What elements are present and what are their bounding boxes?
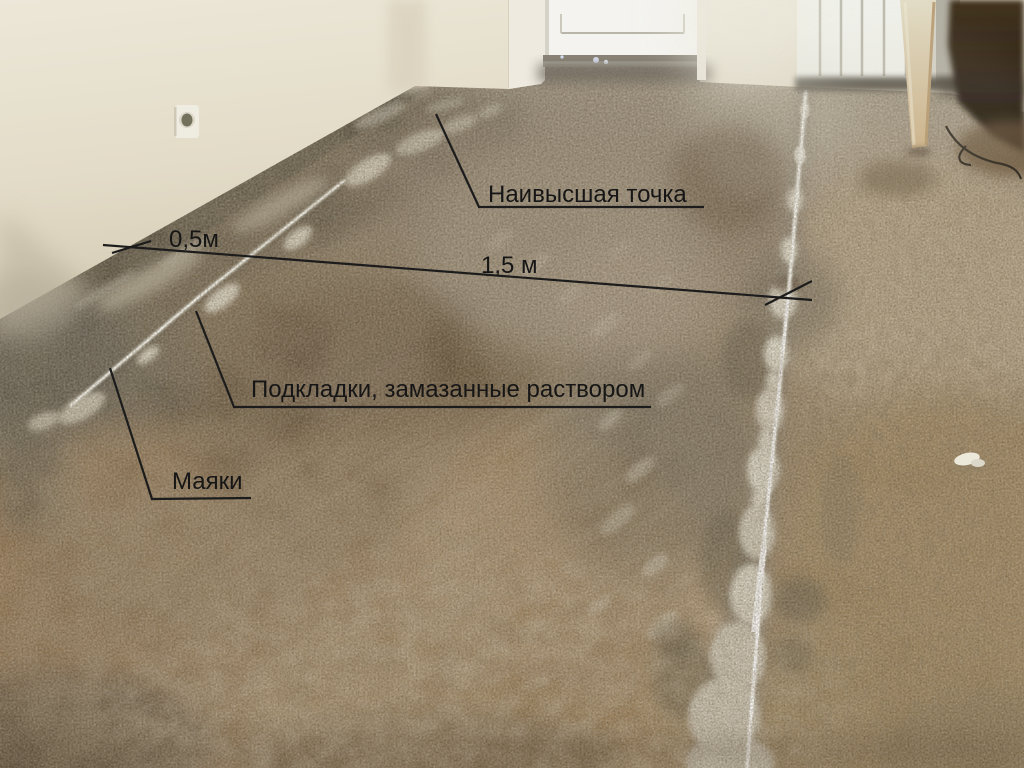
svg-text:0,5м: 0,5м: [169, 226, 219, 253]
svg-text:Маяки: Маяки: [172, 468, 243, 495]
svg-text:Подкладки, замазанные растворо: Подкладки, замазанные раствором: [251, 376, 645, 403]
svg-text:1,5 м: 1,5 м: [481, 252, 538, 279]
svg-text:Наивысшая точка: Наивысшая точка: [488, 181, 687, 208]
